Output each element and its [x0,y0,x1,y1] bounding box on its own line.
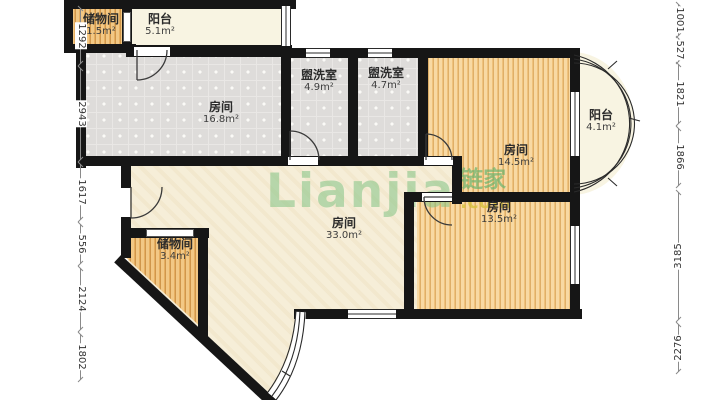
window-balcony-right [570,92,580,156]
wall-top-left [64,0,296,9]
room-label-bedroom-left: 房间 16.8m² [203,100,239,126]
dimension-right-1: 1001 [672,4,685,36]
room-name: 房间 [481,200,517,214]
bedroom-left-floor [80,48,288,160]
room-name: 房间 [203,100,239,114]
wall-entry-above [121,156,131,188]
window-bedroom-right [570,226,580,284]
wall-bedroom-bottom-left [404,192,414,319]
dimension-value: 2276 [673,334,685,361]
storage-bottom-door [146,229,194,237]
room-label-balcony-right: 阳台 4.1m² [586,108,616,134]
room-area: 4.9m² [301,82,337,94]
room-label-storage-top: 储物间 1.5m² [83,12,119,38]
room-label-bedroom-right-bottom: 房间 13.5m² [481,200,517,226]
wall-right-lower [570,282,580,319]
dimension-value: 2124 [75,285,87,312]
room-name: 储物间 [157,237,193,251]
wall-washroom-divider-2 [348,48,358,166]
dimension-right-5: 3185 [672,192,685,320]
room-area: 4.1m² [586,122,616,134]
room-area: 4.7m² [368,80,404,92]
wall-main-horizontal [76,156,462,166]
room-area: 14.5m² [498,157,534,169]
dimension-value: 3185 [673,242,685,269]
wall-right-middle [570,154,580,230]
window-balcony-top [281,6,291,46]
dimension-right-3: 1821 [672,64,685,124]
dimension-left-2: 2943 [74,68,87,160]
dimension-value: 1001 [673,6,685,33]
floor-plan: Lianjia 链家 .com [0,0,710,400]
entry-door-opening [122,188,130,217]
window-bottom [348,309,396,319]
window-top-1 [306,48,330,58]
room-label-balcony-top: 阳台 5.1m² [145,12,175,38]
dimension-value: 1821 [673,80,685,107]
room-label-washroom-1: 盥洗室 4.9m² [301,68,337,94]
dimension-value: 1866 [673,143,685,170]
bedroom-right-bottom-door-opening [422,193,452,201]
room-label-bedroom-right-top: 房间 14.5m² [498,143,534,169]
room-area: 13.5m² [481,214,517,226]
dimension-right-4: 1866 [672,128,685,186]
room-name: 阳台 [145,12,175,26]
room-label-living-room: 房间 33.0m² [326,216,362,242]
room-name: 储物间 [83,12,119,26]
wall-washroom-divider-1 [281,48,291,166]
dimension-value: 1292 [75,22,87,49]
wall-storage-bottom-right [198,228,208,338]
dimension-value: 2943 [75,100,87,127]
room-name: 房间 [498,143,534,157]
window-top-2 [368,48,392,58]
room-area: 1.5m² [83,26,119,38]
dimension-value: 1617 [75,178,87,205]
dimension-right-2: 527 [672,38,685,62]
dimension-left-4: 556 [74,224,87,264]
wall-right-upper [570,48,580,96]
dimension-right-6: 2276 [672,324,685,372]
dimension-left-5: 2124 [74,268,87,330]
wall-bottom-outer [294,309,582,319]
room-area: 16.8m² [203,114,239,126]
dimension-value: 527 [673,39,685,60]
room-name: 盥洗室 [301,68,337,82]
watermark-cjk: 链家 [460,168,506,193]
dimension-left-6: 1802 [74,334,87,380]
washroom-1-door-opening [288,157,318,165]
dimension-value: 1802 [75,343,87,370]
room-label-storage-bottom: 储物间 3.4m² [157,237,193,263]
room-area: 3.4m² [157,251,193,263]
room-area: 5.1m² [145,26,175,38]
room-label-washroom-2: 盥洗室 4.7m² [368,66,404,92]
room-name: 阳台 [586,108,616,122]
dimension-left-3: 1617 [74,164,87,220]
bedroom-right-top-door-opening [424,157,453,165]
room-name: 房间 [326,216,362,230]
dimension-value: 556 [75,233,87,254]
storage-top-door [123,12,131,42]
dimension-left-1: 1292 [74,8,87,64]
room-area: 33.0m² [326,230,362,242]
room-name: 盥洗室 [368,66,404,80]
wall-washroom-2-right [418,48,428,166]
balcony-top-door-opening [134,47,170,56]
